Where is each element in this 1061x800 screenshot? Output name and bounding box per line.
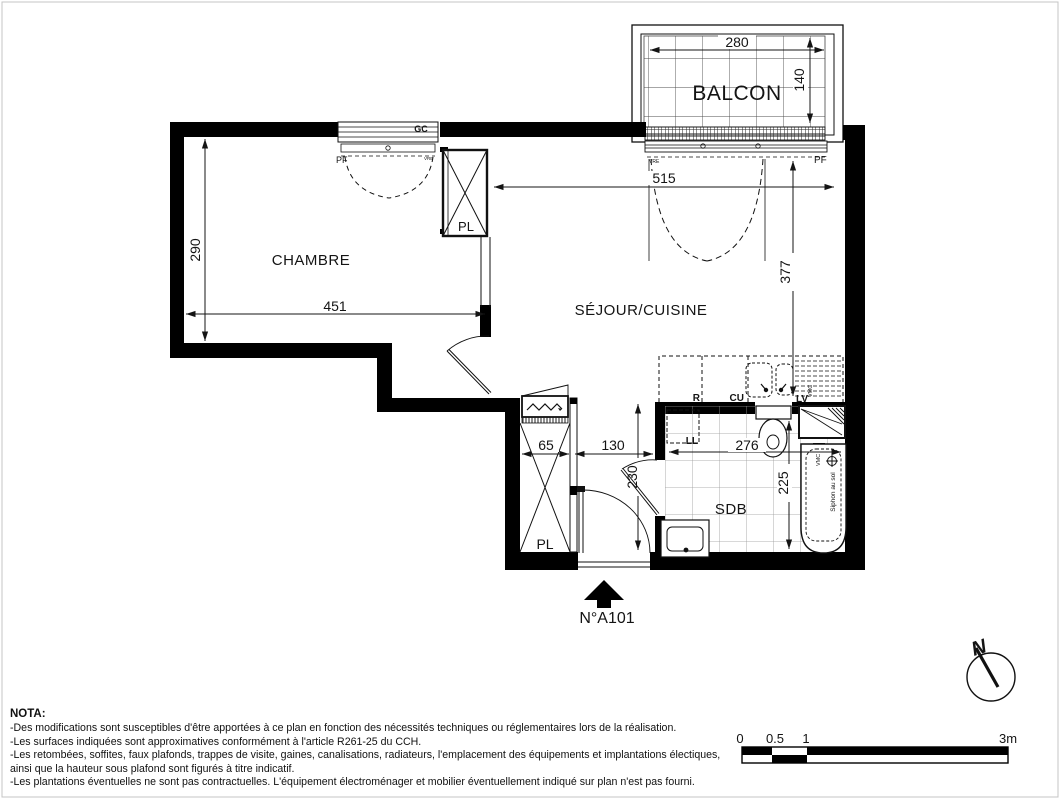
wall-right (845, 125, 865, 570)
bathroom: LL Siphon au sol VMC SDB (661, 406, 846, 557)
scale-seg (772, 755, 807, 763)
scale-seg (807, 755, 1008, 763)
washbasin-bowl (667, 527, 703, 551)
compass-north-label: N (969, 635, 990, 661)
closet-label: PL (458, 219, 474, 234)
scale-seg (772, 747, 807, 755)
scale-tick-0: 0 (736, 731, 743, 746)
window-swing-right (389, 157, 433, 198)
entrance-arrow-icon (584, 580, 624, 608)
closet-wall-nub-top (570, 398, 577, 404)
convector-grille (522, 417, 568, 423)
scale-seg (807, 747, 1008, 755)
dim-sdb-depth: 225 (775, 471, 791, 495)
label-vmc-kitchen: VMC (808, 385, 814, 397)
room-label-sejour: SÉJOUR/CUISINE (575, 302, 708, 319)
label-cuisson: CU (730, 393, 744, 404)
wall-hall-top (377, 398, 520, 412)
convector-box (522, 396, 568, 417)
dim-balcony-depth: 140 (791, 68, 807, 92)
room-label-balcon: BALCON (692, 82, 781, 105)
dim-chambre-width: 451 (323, 298, 347, 314)
floor-plan-drawing: 280 140 BALCON GC (0, 0, 1061, 800)
door-swing-arc (583, 490, 650, 553)
sink-basin-1 (746, 363, 772, 397)
chambre-window: GC PF VRE (336, 122, 438, 198)
window-swing-right (707, 159, 763, 261)
closet-label: PL (536, 536, 553, 552)
scale-tick-1: 1 (802, 731, 809, 746)
nota-line-2: -Les surfaces indiquées sont approximati… (10, 736, 710, 750)
scale-tick-3m: 3m (999, 731, 1017, 746)
wall-top-left (170, 122, 338, 137)
nota-line-4: ainsi que la hauteur sous plafond sont f… (10, 763, 710, 777)
dim-chambre-depth: 290 (187, 238, 203, 262)
wall-chambre-bottom (170, 343, 392, 358)
scale-seg (742, 747, 772, 755)
wall-bottom-left (505, 552, 578, 570)
door-leaf (447, 350, 491, 395)
label-siphon: Siphon au sol (830, 472, 837, 512)
unit-label: N°A101 (579, 610, 634, 627)
wall-top-mid (440, 122, 646, 137)
wall-left (170, 122, 184, 358)
scale-tick-05: 0.5 (766, 731, 784, 746)
nota-title: NOTA: (10, 708, 710, 720)
dim-placard-width: 65 (538, 437, 554, 453)
label-refrigerateur: R (693, 393, 701, 404)
window-tag-vre: VRE (424, 156, 433, 161)
room-label-sdb: SDB (715, 501, 747, 518)
label-lave-vaisselle: LV (796, 394, 808, 405)
door-handle (577, 486, 585, 492)
dishwasher-rack-lines (795, 361, 842, 396)
nota-block: NOTA: -Des modifications sont susceptibl… (10, 708, 710, 790)
sink-tap-2-spout (781, 384, 786, 390)
wall-hall-sdb-upper (655, 402, 665, 460)
sink-tap-1-spout (761, 384, 766, 390)
room-label-chambre: CHAMBRE (272, 252, 351, 269)
dim-balcony-width: 280 (725, 34, 749, 50)
unit-entrance-marker: N°A101 (579, 580, 634, 627)
balcony-grating-strip (645, 127, 825, 140)
nota-line-3: -Les retombées, soffites, faux plafonds,… (10, 749, 710, 763)
nota-line-5: -Les plantations éventuelles ne sont pas… (10, 776, 710, 790)
sink-basin-2 (776, 364, 793, 395)
floor-plan-sheet: 280 140 BALCON GC (0, 0, 1061, 800)
window-box (645, 141, 827, 152)
closet-wall-nub-mid (570, 486, 577, 495)
washbasin-drain (684, 548, 689, 553)
wall-entry-left (505, 398, 520, 570)
label-lave-linge: LL (686, 436, 698, 447)
sejour-window: VRE PF (645, 141, 827, 261)
closet-top: PL (443, 150, 487, 236)
wall-partition-stub (480, 305, 491, 337)
convector-flap (522, 385, 568, 396)
nota-line-1: -Des modifications sont susceptibles d'ê… (10, 722, 710, 736)
balcony: 280 140 BALCON (632, 25, 843, 142)
window-sill (341, 144, 435, 152)
scale-bar: 0 0.5 1 3m (736, 731, 1017, 763)
label-vmc-bath: VMC (816, 454, 822, 466)
entry-door (577, 486, 650, 570)
door-swing-arc (447, 336, 489, 351)
scale-seg (742, 755, 772, 763)
closet-side-wall (570, 398, 577, 552)
window-swing-left (345, 157, 389, 198)
dim-sdb-width: 276 (735, 437, 759, 453)
window-tag-gc: GC (414, 124, 428, 134)
dim-entry-width: 130 (601, 437, 625, 453)
dim-sejour-depth: 377 (777, 260, 793, 284)
entry-closet: PL (520, 385, 577, 552)
partition-chambre-sejour (481, 237, 490, 307)
dim-sejour-width: 515 (652, 170, 676, 186)
window-tag-pf: PF (336, 155, 348, 165)
window-tag-pf: PF (814, 155, 827, 166)
toilet-cistern (756, 406, 791, 419)
north-compass: N (967, 635, 1015, 701)
chambre-door (447, 336, 491, 394)
